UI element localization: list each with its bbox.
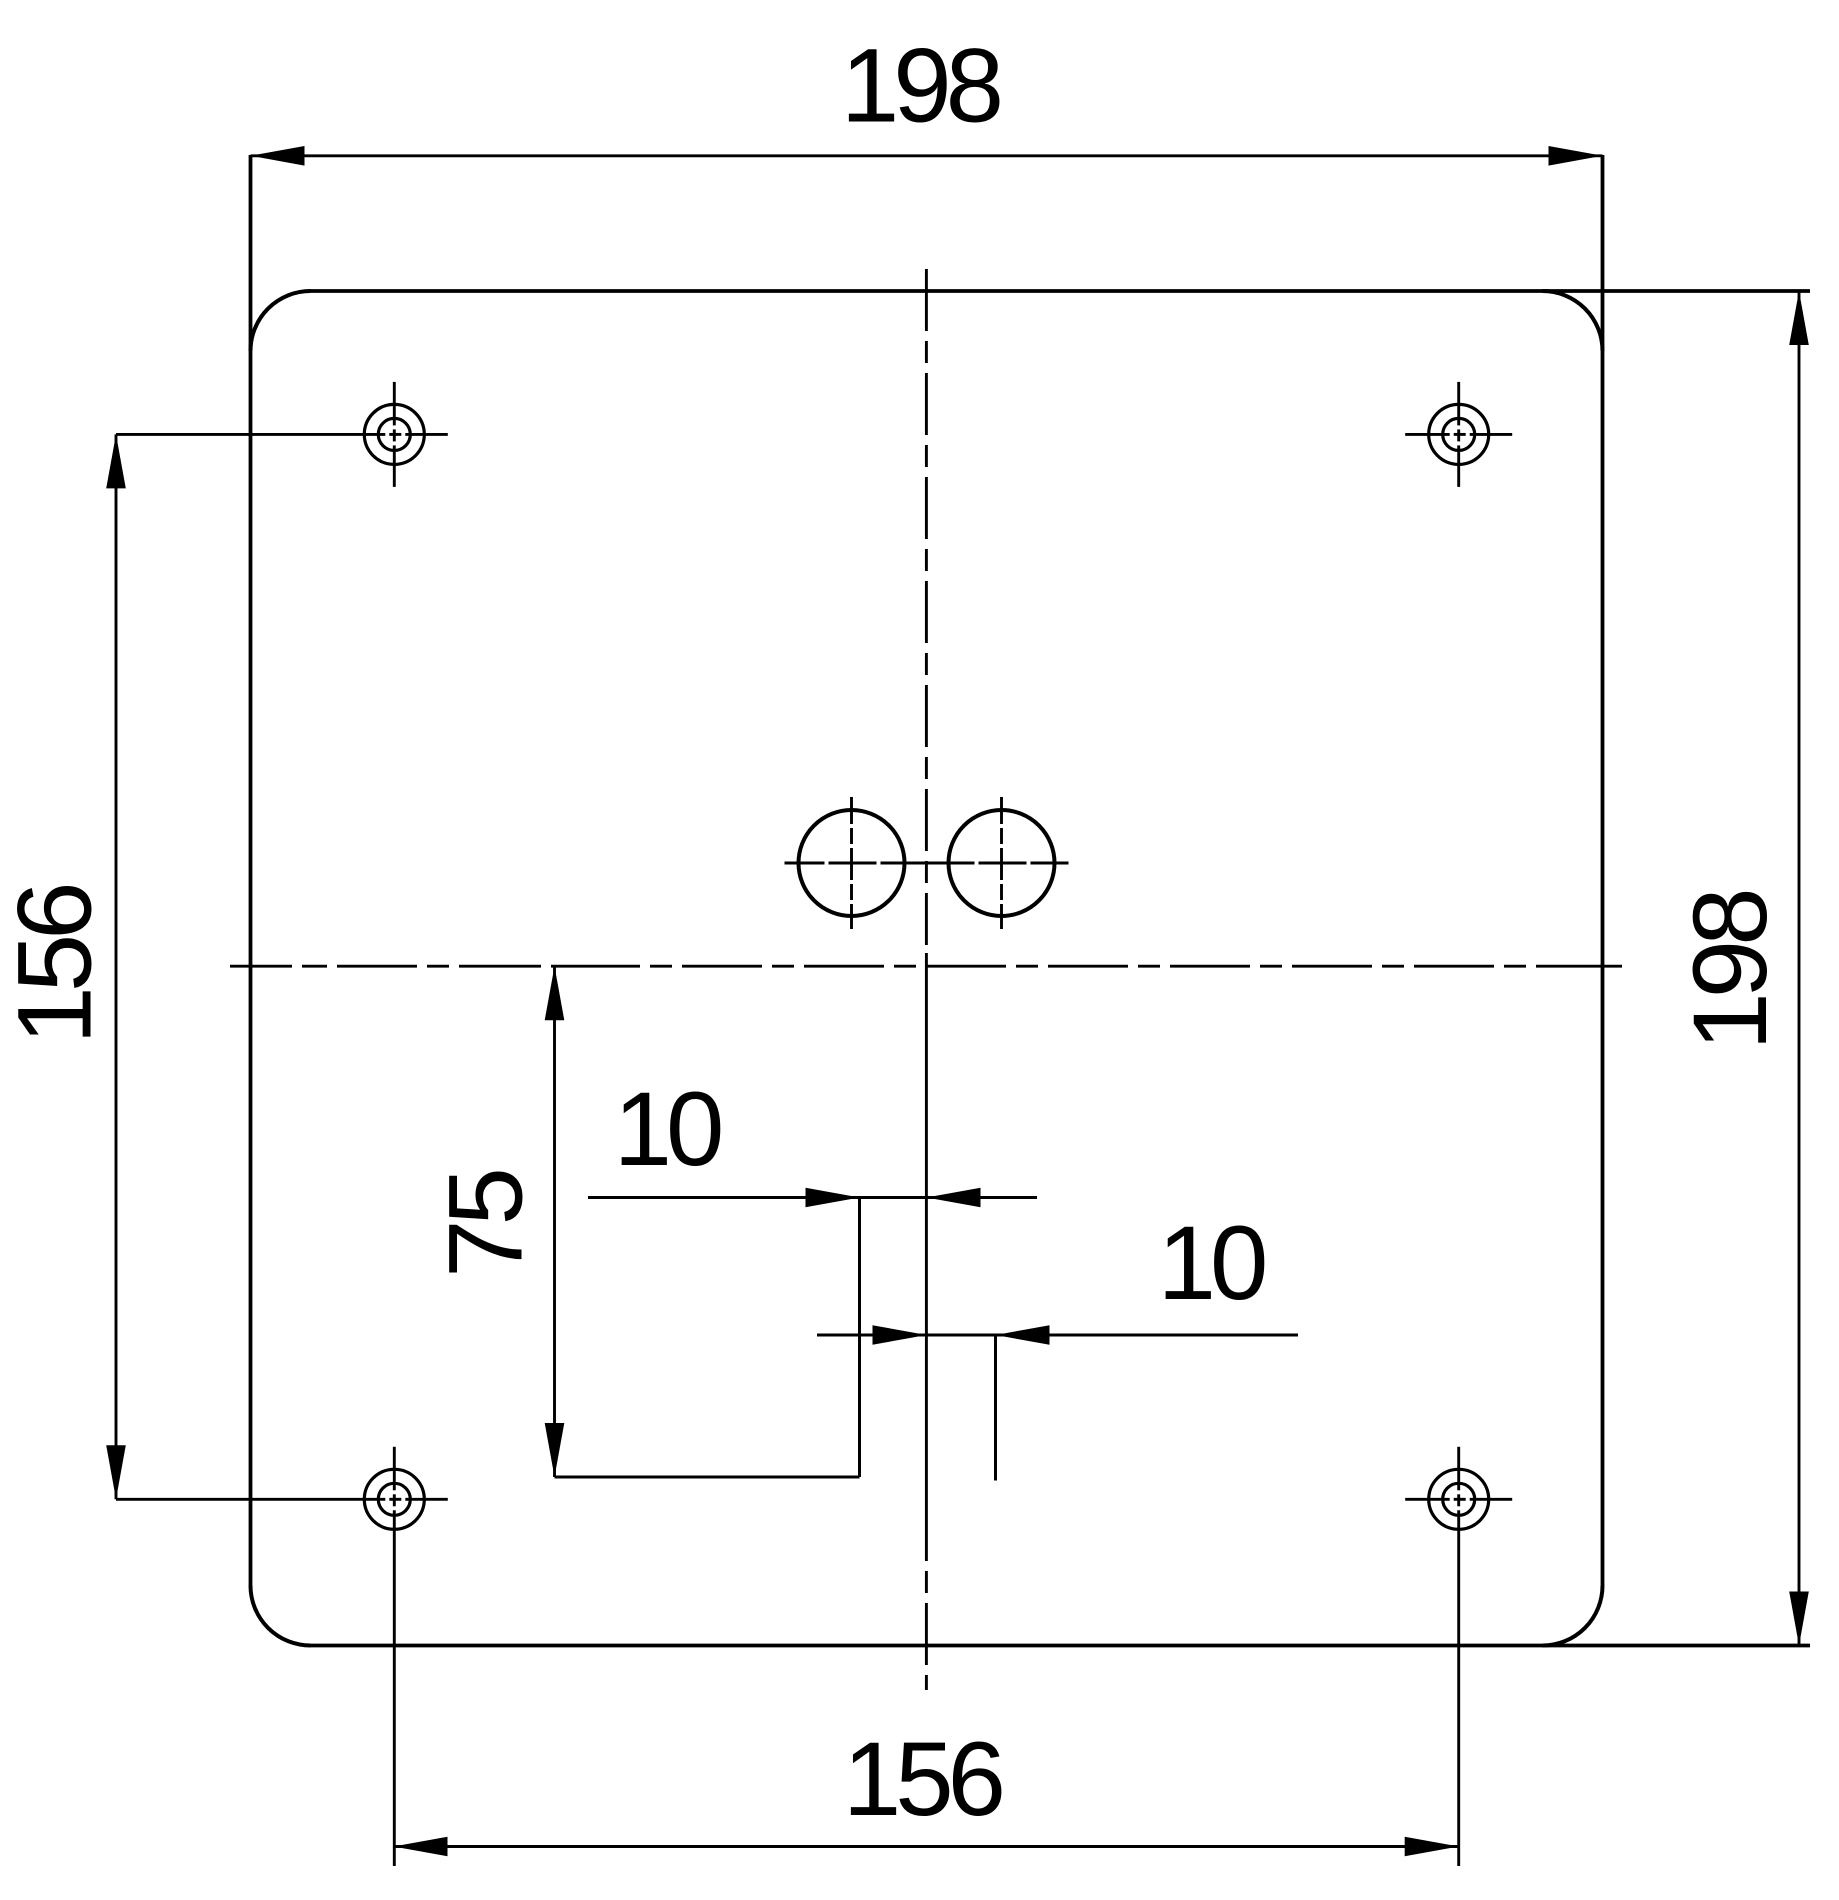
svg-text:10: 10	[1158, 1205, 1265, 1322]
svg-text:10: 10	[614, 1071, 721, 1188]
svg-text:156: 156	[0, 886, 114, 1045]
svg-text:198: 198	[841, 27, 1000, 144]
svg-text:156: 156	[843, 1721, 1002, 1838]
svg-text:198: 198	[1672, 892, 1789, 1051]
svg-text:75: 75	[428, 1172, 545, 1278]
